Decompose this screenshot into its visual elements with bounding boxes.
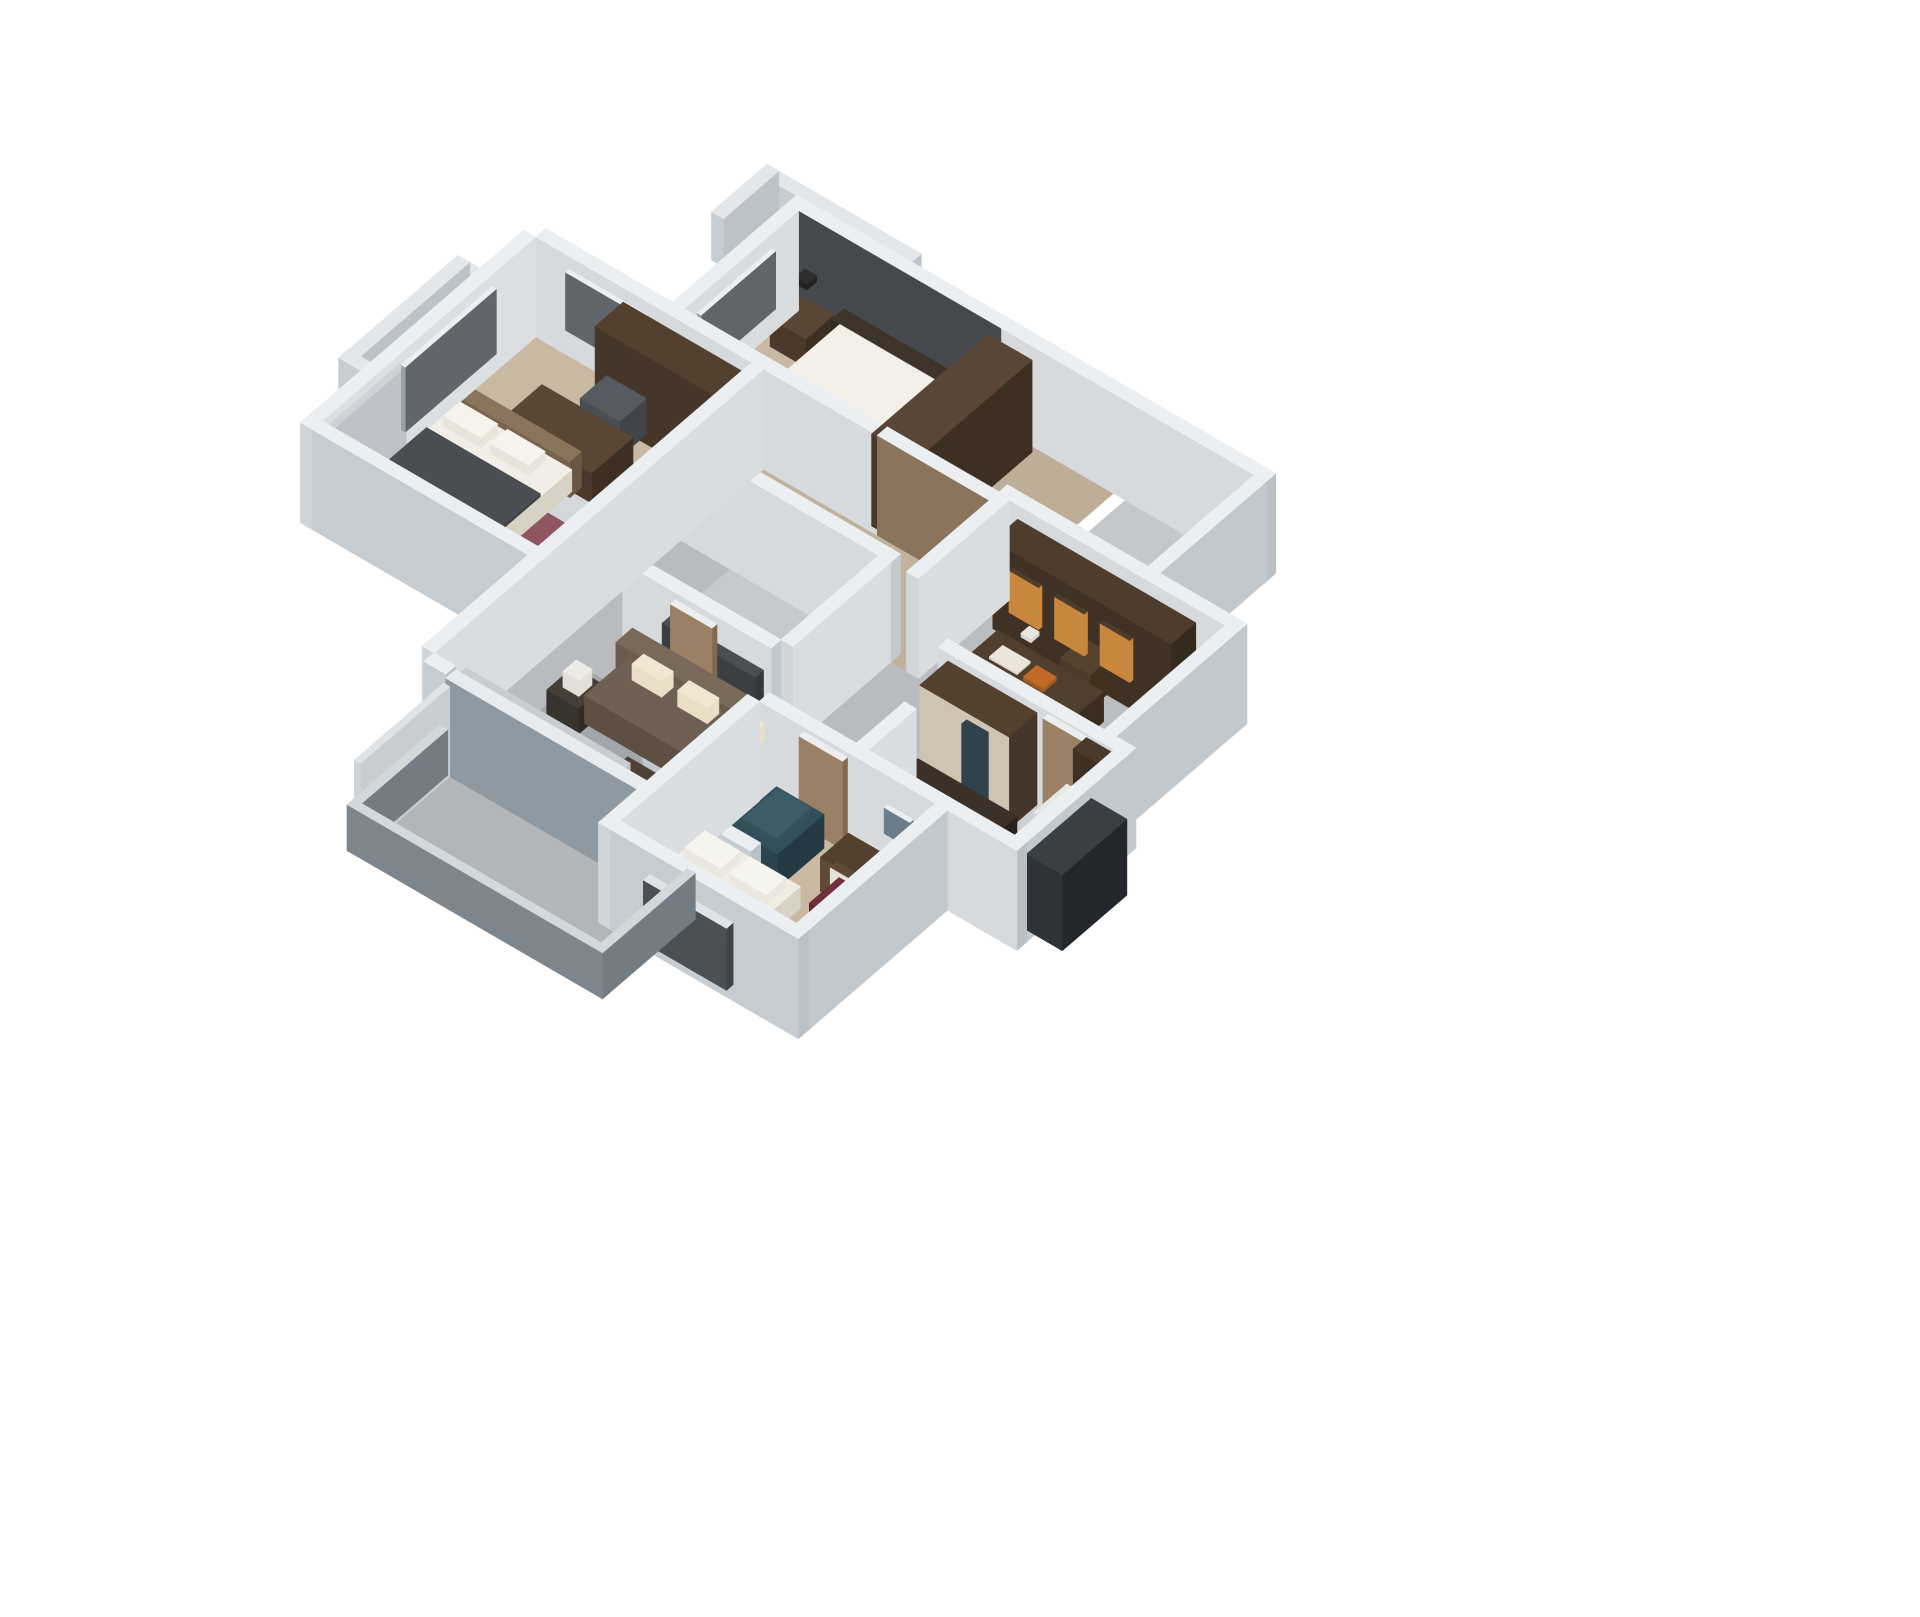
wall-master-west-south-face	[300, 423, 312, 530]
wine-cabinet-glow-1-east-face	[1039, 585, 1042, 630]
wall-bathroom1-south-east-face	[1237, 624, 1247, 733]
wall-kitchen-north-east-face	[1126, 748, 1136, 857]
wall-south-band-east-face	[1017, 842, 1027, 951]
wall-bedroom3-west-south-face	[598, 823, 610, 930]
window-master-west-south-face	[401, 365, 405, 432]
railing-east-south-face	[595, 948, 603, 999]
window-bedroom3-east-face	[727, 923, 734, 991]
wall-bathroom2-north-east-face	[891, 554, 901, 663]
floor-plan-figure	[0, 0, 1920, 1617]
wine-cabinet-glow-3-east-face	[1130, 638, 1133, 683]
floor-plan-3d	[0, 0, 1920, 1617]
wall-bedroom3-south-east-face	[798, 930, 808, 1039]
ledge-north-parapet-west-south-face	[712, 212, 724, 267]
wine-cabinet-glow-2-east-face	[1084, 611, 1087, 656]
wall-north-east-east-face	[1266, 473, 1276, 582]
wall-corridor-east-south-face	[906, 572, 918, 679]
